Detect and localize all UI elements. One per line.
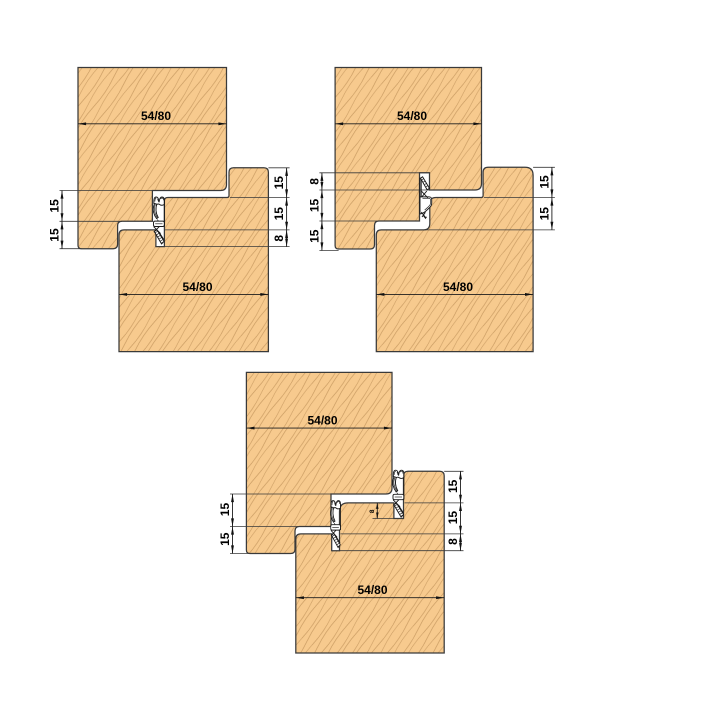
svg-text:8: 8 <box>446 538 460 545</box>
svg-text:15: 15 <box>272 176 286 190</box>
svg-text:8: 8 <box>272 235 286 242</box>
svg-text:15: 15 <box>307 229 321 243</box>
svg-text:54/80: 54/80 <box>307 414 337 428</box>
svg-text:8: 8 <box>369 509 376 513</box>
svg-text:54/80: 54/80 <box>182 280 212 294</box>
svg-text:54/80: 54/80 <box>397 109 427 123</box>
svg-text:54/80: 54/80 <box>141 109 171 123</box>
svg-text:15: 15 <box>446 511 460 525</box>
svg-text:15: 15 <box>446 479 460 493</box>
svg-text:15: 15 <box>307 199 321 213</box>
svg-text:15: 15 <box>537 175 551 189</box>
svg-text:15: 15 <box>218 532 232 546</box>
svg-text:8: 8 <box>307 178 321 185</box>
svg-text:15: 15 <box>48 228 62 242</box>
svg-text:15: 15 <box>218 503 232 517</box>
svg-text:15: 15 <box>272 207 286 221</box>
svg-text:15: 15 <box>48 199 62 213</box>
svg-text:54/80: 54/80 <box>357 583 387 597</box>
svg-text:54/80: 54/80 <box>443 280 473 294</box>
svg-text:15: 15 <box>537 207 551 221</box>
